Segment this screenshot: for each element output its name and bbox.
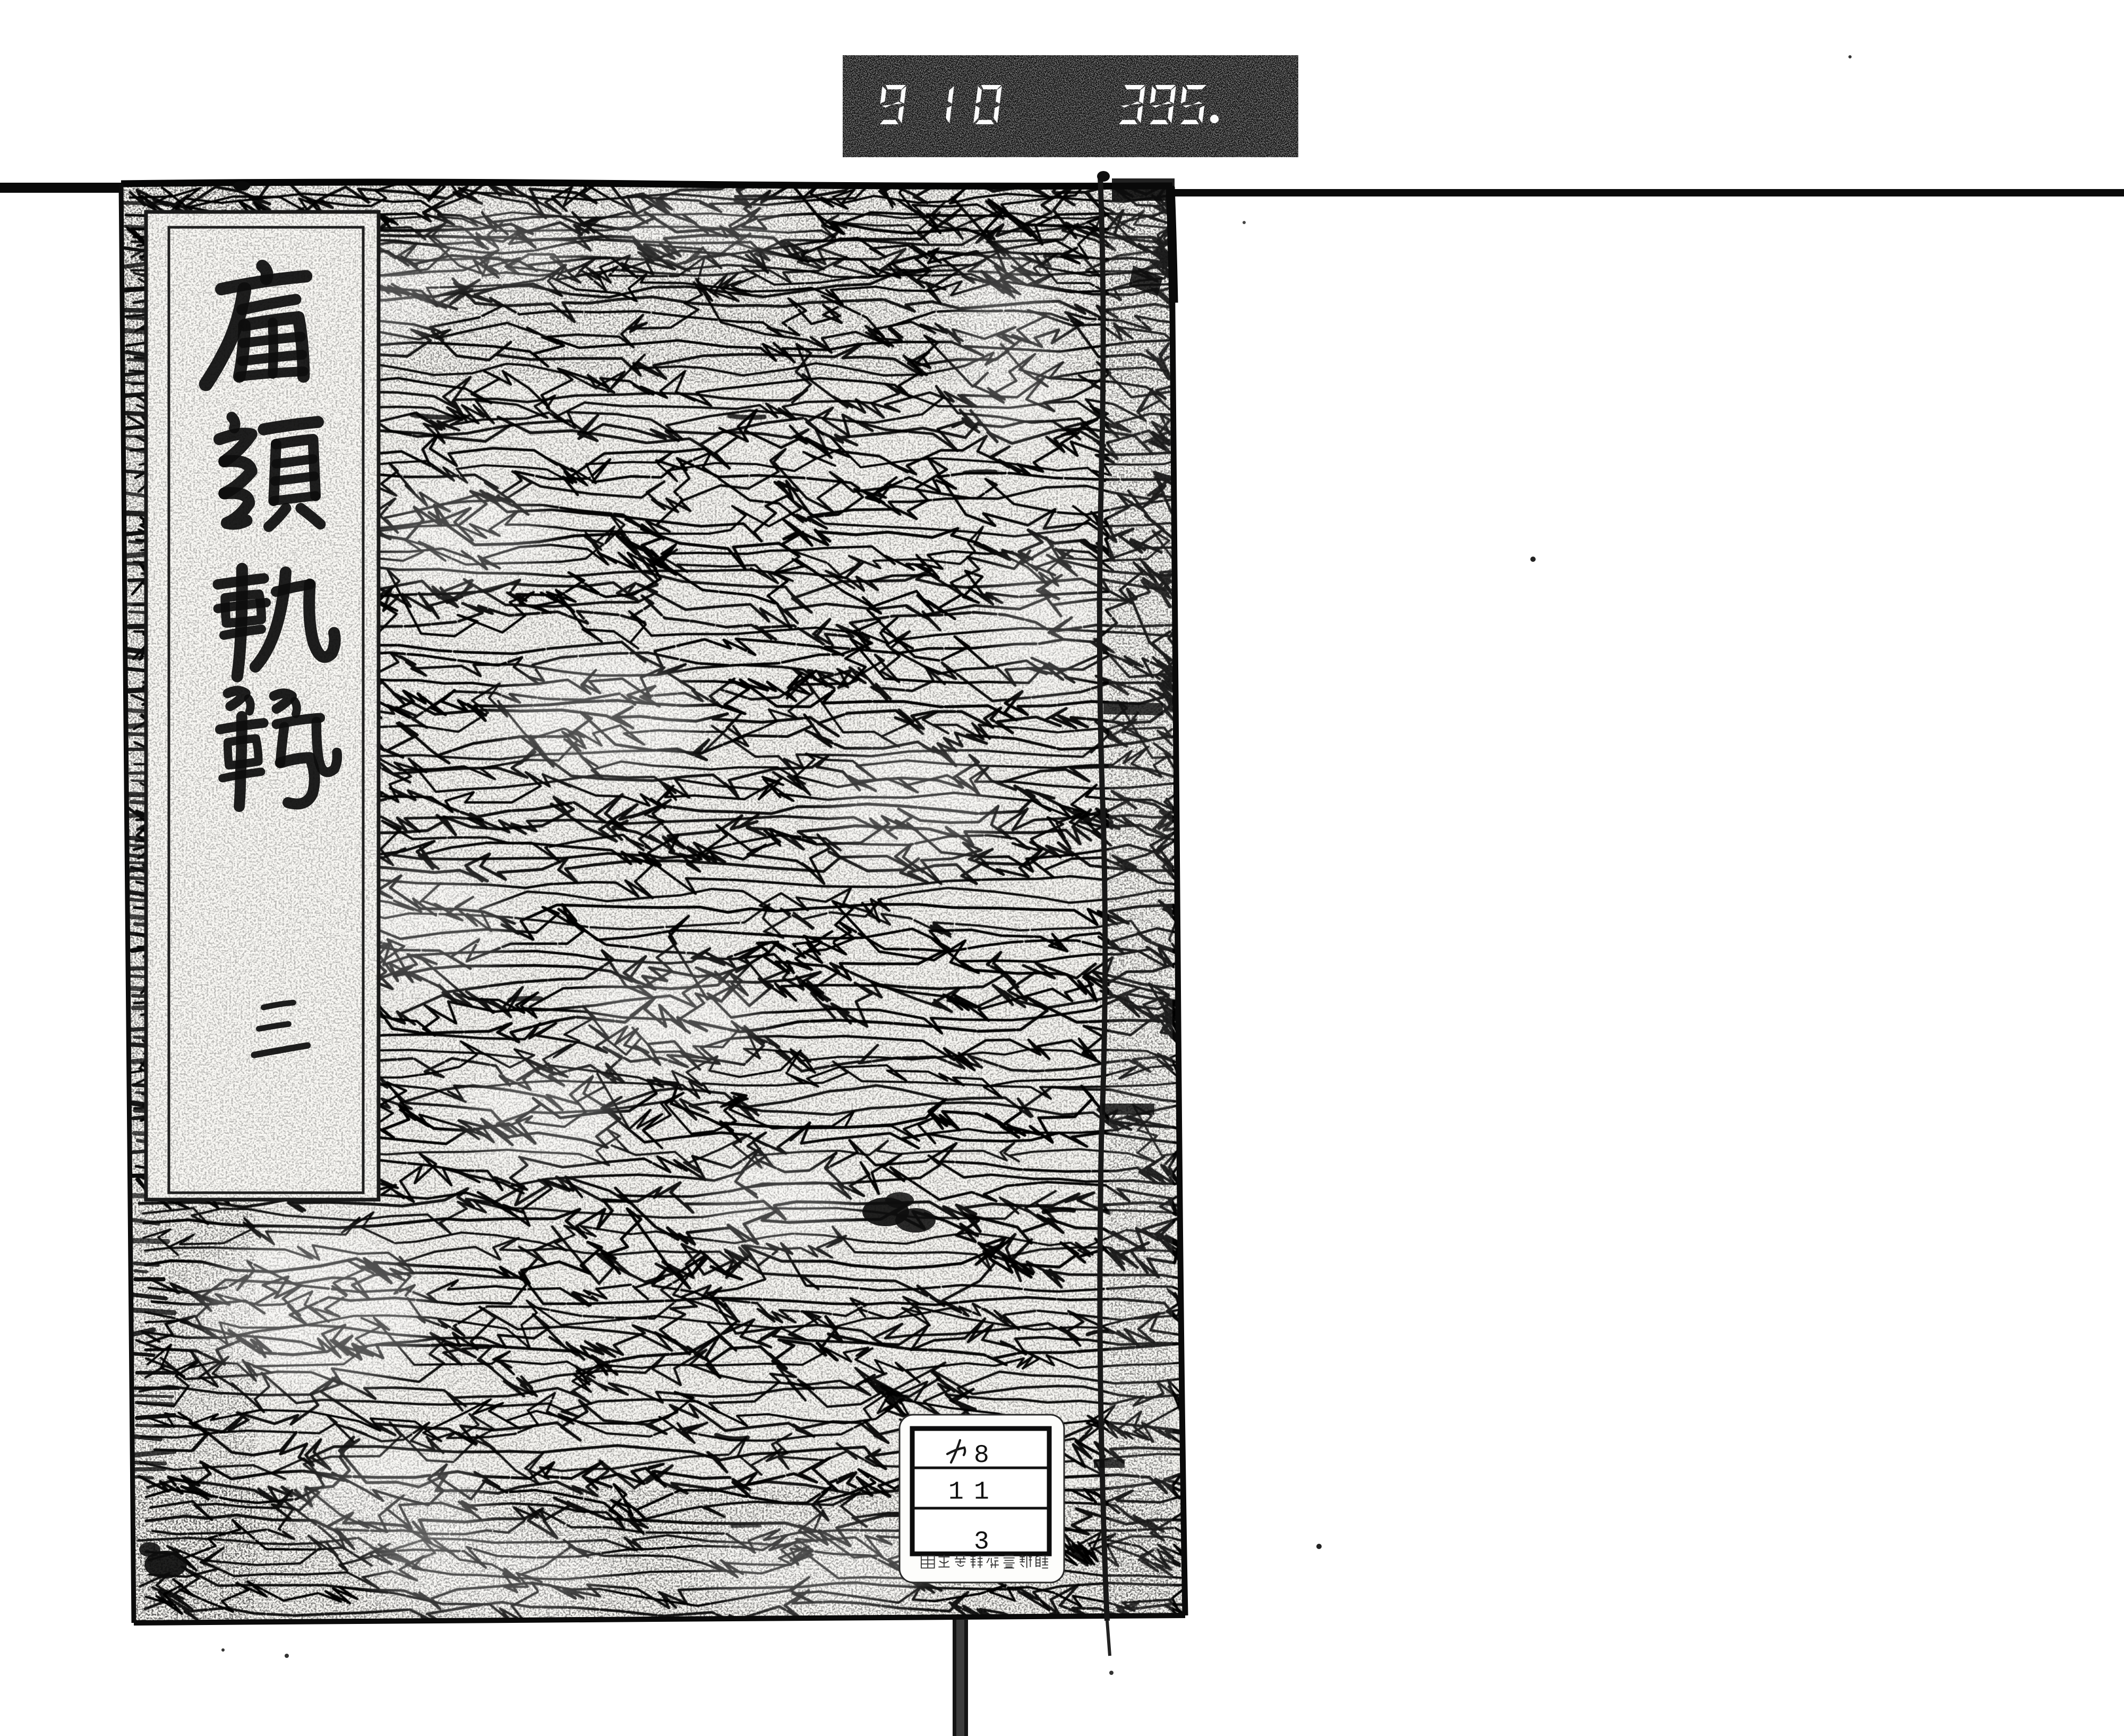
svg-text:3: 3 (974, 1528, 989, 1557)
svg-text:8: 8 (974, 1441, 989, 1470)
svg-text:1: 1 (948, 1478, 964, 1507)
svg-text:1: 1 (974, 1478, 989, 1507)
